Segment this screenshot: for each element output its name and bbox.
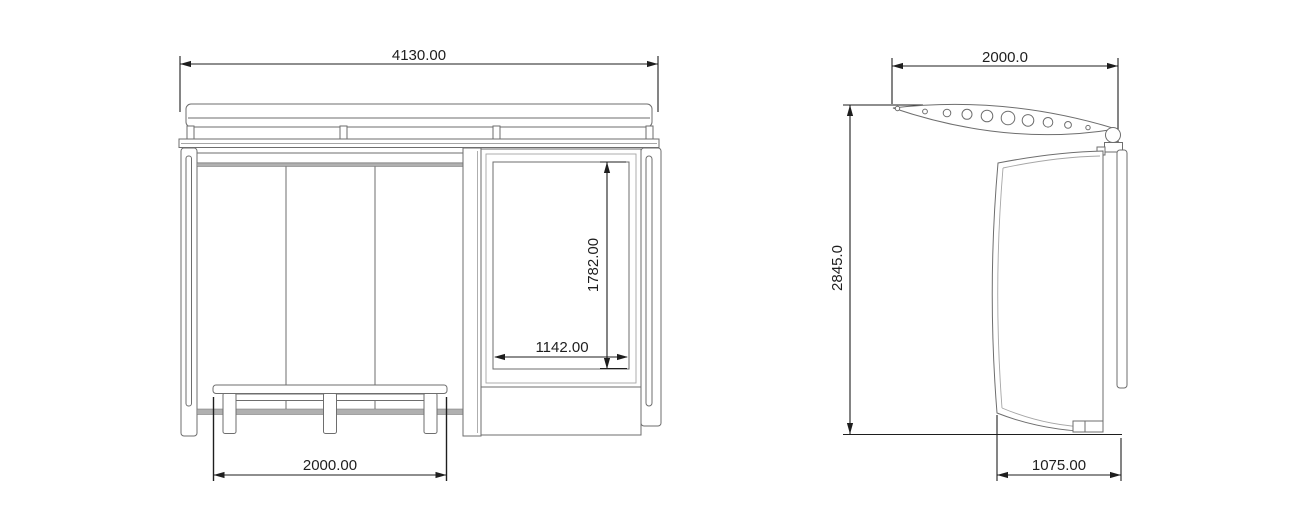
technical-drawing-page: 4130.00	[0, 0, 1300, 514]
dim-label-overall-height: 2845.0	[829, 245, 846, 291]
dim-arrow	[1110, 472, 1121, 478]
roof-assembly	[179, 104, 659, 148]
dim-arrow	[847, 423, 853, 434]
cabinet-side-profile	[992, 147, 1127, 432]
front-elevation-view: 4130.00	[179, 47, 661, 481]
cabinet-body	[992, 151, 1103, 432]
ad-panel-screen	[493, 162, 629, 369]
glass-top-rail	[197, 153, 463, 163]
roof-panel	[186, 104, 652, 127]
dim-arrow	[180, 61, 191, 67]
post-groove	[646, 156, 652, 406]
roof-bracket	[187, 126, 194, 140]
dim-arrow	[892, 63, 903, 69]
left-post	[181, 148, 197, 436]
dim-arrow	[647, 61, 658, 67]
shelter-technical-drawing: 4130.00	[0, 0, 1300, 514]
canopy-tip-hole	[895, 106, 899, 110]
post-groove	[186, 156, 192, 406]
ad-panel-front	[481, 149, 641, 435]
cabinet-base-block	[1073, 421, 1103, 432]
roof-bracket	[646, 126, 653, 140]
dim-arrow	[847, 105, 853, 116]
side-elevation-view: 2000.0 2845.0	[829, 49, 1127, 481]
dim-arrow	[1107, 63, 1118, 69]
dim-arrow	[436, 472, 447, 478]
dim-label-front-overall-width: 4130.00	[392, 47, 446, 64]
roof-bracket	[493, 126, 500, 140]
dim-label-roof-depth: 2000.0	[982, 49, 1028, 66]
bench-leg	[223, 393, 236, 434]
dim-front-overall-width: 4130.00	[180, 47, 658, 112]
canopy-profile	[893, 104, 1116, 134]
dim-label-bench-length: 2000.00	[303, 457, 357, 474]
bench-leg	[424, 393, 437, 434]
canopy-mount-ball	[1106, 128, 1121, 143]
roof-bracket	[340, 126, 347, 140]
dim-label-ad-panel-height: 1782.00	[585, 238, 602, 292]
post-body	[463, 148, 481, 436]
glass-back-wall	[197, 153, 463, 415]
right-post	[641, 148, 661, 426]
glass-top-gasket	[197, 163, 463, 167]
dim-label-ad-panel-width: 1142.00	[535, 339, 588, 356]
bench-seat	[213, 385, 447, 394]
back-panel	[1117, 150, 1127, 388]
canopy-airfoil	[893, 104, 1123, 152]
middle-post	[463, 148, 481, 436]
bench-leg	[324, 393, 337, 434]
dim-arrow	[214, 472, 225, 478]
dim-overall-height: 2845.0	[829, 105, 923, 434]
dim-arrow	[997, 472, 1008, 478]
dim-label-base-depth: 1075.00	[1032, 457, 1086, 474]
